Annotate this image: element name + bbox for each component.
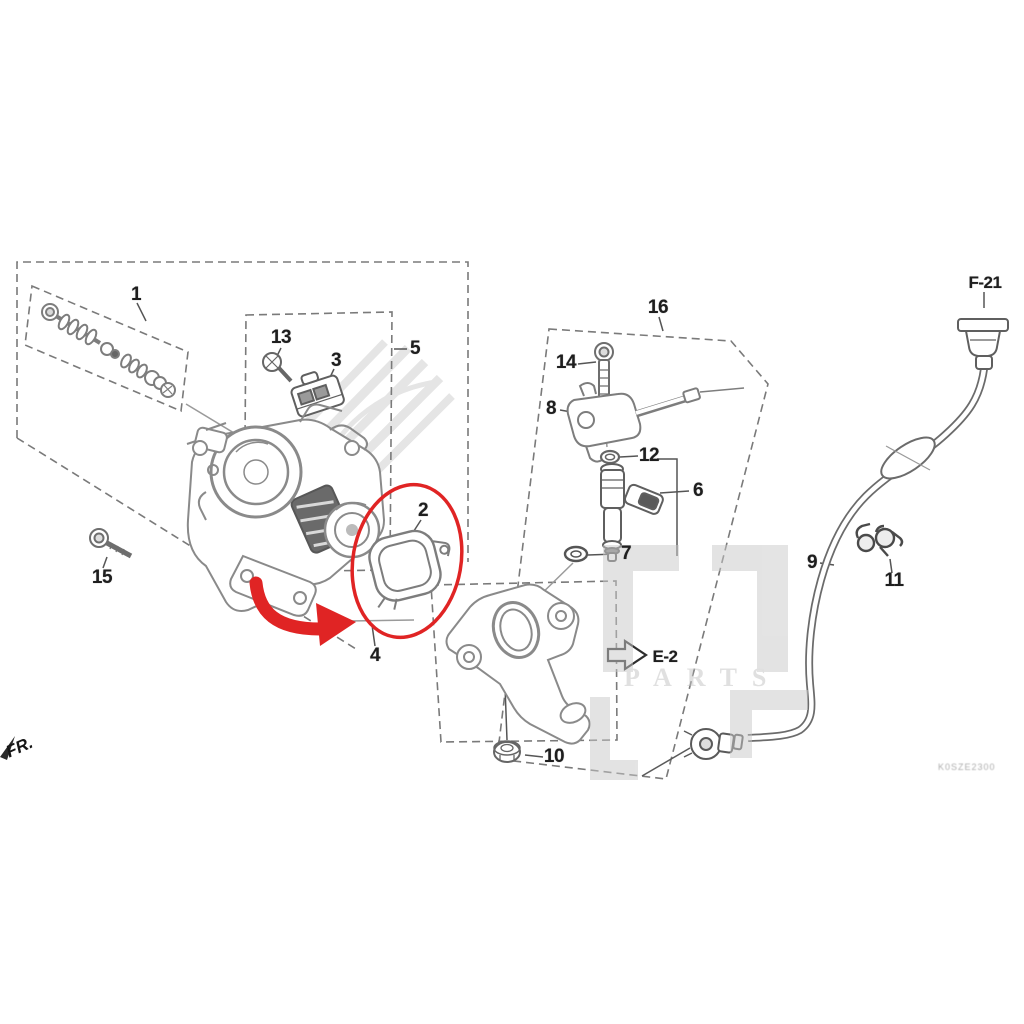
- quick-connector-drawing: [958, 319, 1008, 369]
- hose-end-fitting-drawing: [642, 729, 743, 776]
- diagram-line-art: [0, 0, 1024, 1024]
- fr-arrow: [0, 736, 15, 760]
- seal-ring-7-drawing: [565, 547, 587, 561]
- oring-12-drawing: [601, 451, 619, 463]
- injector-drawing: [601, 464, 664, 561]
- hose-clamp-drawing: [857, 524, 902, 556]
- dashed-group-boxes: [17, 262, 768, 779]
- bolt-15-drawing: [90, 529, 131, 556]
- intake-manifold-drawing: [447, 585, 590, 744]
- fuel-hose-drawing: [748, 369, 984, 738]
- parts-diagram: PARTS FR. K0SZE2300 12345678910111213141…: [0, 0, 1024, 1024]
- e2-reference-arrow: [608, 641, 646, 669]
- fuel-pipe-drawing: [568, 383, 744, 462]
- screw-13-drawing: [263, 353, 291, 381]
- nut-10-drawing: [494, 741, 520, 762]
